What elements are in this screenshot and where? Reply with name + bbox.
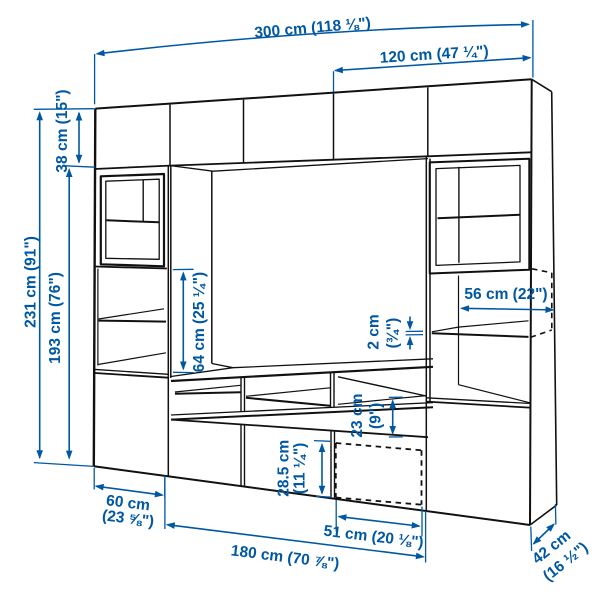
svg-text:56 cm (22"): 56 cm (22")	[464, 286, 547, 303]
svg-text:23 cm: 23 cm	[349, 394, 366, 438]
svg-text:193 cm (76"): 193 cm (76")	[47, 272, 64, 364]
svg-text:38 cm (15"): 38 cm (15")	[54, 89, 71, 172]
svg-text:64 cm (25 ¼"): 64 cm (25 ¼")	[191, 272, 208, 372]
svg-text:(¾"): (¾")	[385, 318, 402, 349]
svg-text:2 cm: 2 cm	[366, 314, 383, 349]
svg-text:(11 ¼"): (11 ¼")	[292, 443, 309, 494]
svg-text:231 cm (91"): 231 cm (91")	[23, 236, 40, 328]
svg-text:28.5 cm: 28.5 cm	[276, 440, 293, 497]
svg-text:(9"): (9")	[368, 403, 385, 429]
